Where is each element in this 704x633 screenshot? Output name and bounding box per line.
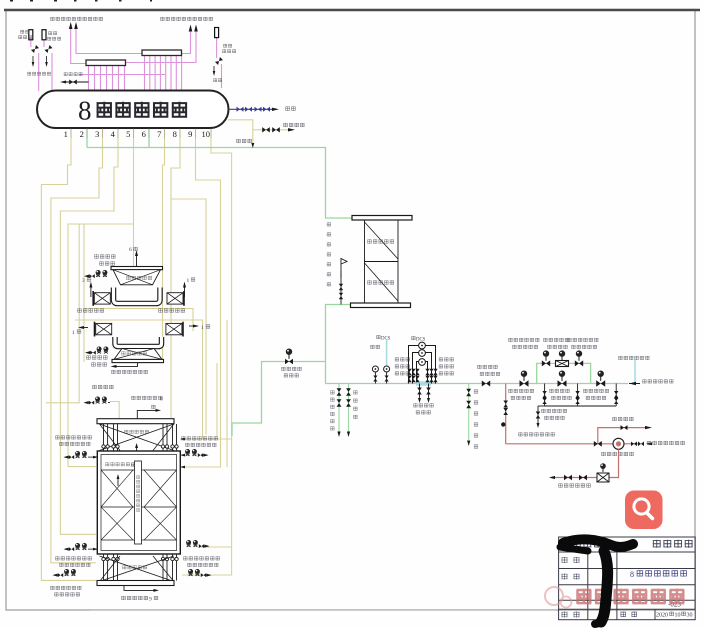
svg-text:3: 3 [95, 129, 99, 139]
svg-text:9: 9 [188, 129, 192, 139]
svg-text:6: 6 [142, 129, 146, 139]
svg-text:2: 2 [80, 129, 84, 139]
svg-text:8: 8 [160, 397, 163, 403]
svg-text:8: 8 [173, 129, 177, 139]
svg-text:8: 8 [78, 96, 92, 126]
svg-text:12: 12 [130, 463, 135, 468]
svg-text:2020: 2020 [656, 613, 668, 619]
svg-text:10: 10 [675, 613, 681, 619]
svg-text:1: 1 [201, 325, 204, 331]
svg-text:DCS: DCS [416, 338, 426, 343]
svg-text:10: 10 [202, 129, 211, 139]
svg-text:1: 1 [72, 330, 75, 336]
svg-text:1: 1 [64, 129, 68, 139]
svg-text:DCS: DCS [381, 337, 391, 342]
svg-text:6: 6 [129, 247, 132, 253]
svg-text:7: 7 [157, 129, 161, 139]
svg-text:5: 5 [126, 129, 130, 139]
svg-text:1: 1 [187, 278, 190, 284]
svg-text:3: 3 [82, 278, 85, 284]
svg-text:30: 30 [687, 613, 693, 619]
svg-text:8: 8 [630, 570, 634, 579]
svg-text:9: 9 [149, 597, 152, 603]
svg-text:4: 4 [111, 129, 116, 139]
